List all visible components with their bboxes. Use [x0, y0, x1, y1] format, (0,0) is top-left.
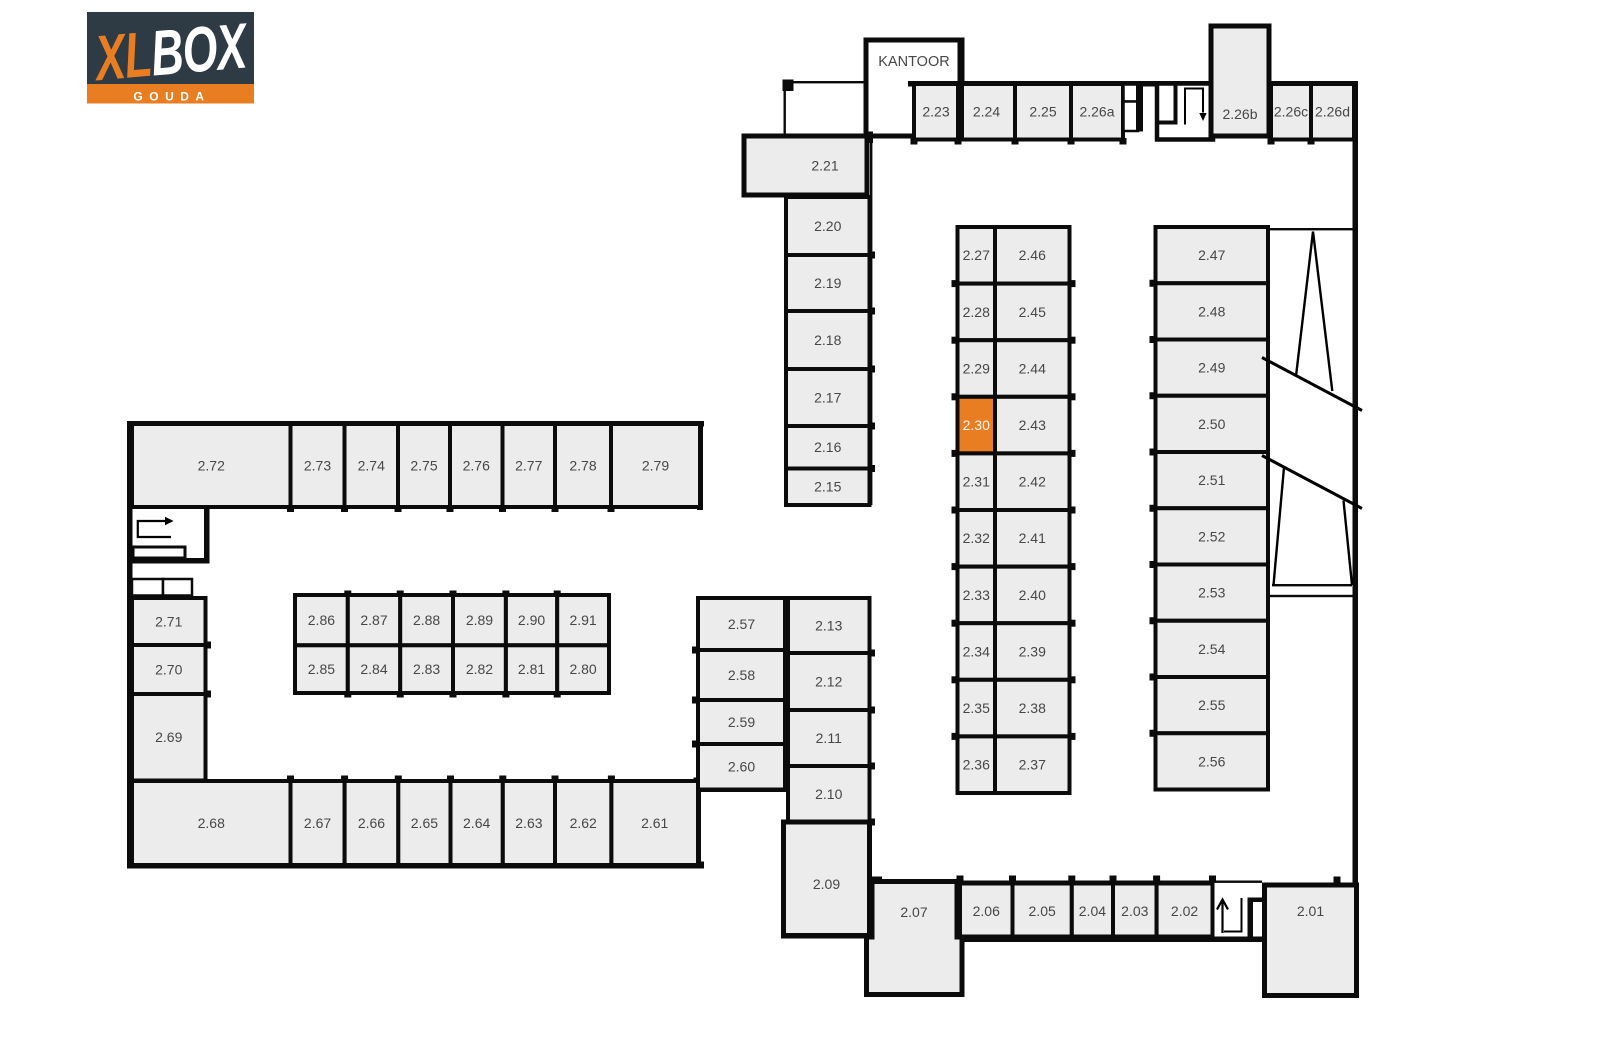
svg-text:2.21: 2.21 — [811, 157, 838, 173]
svg-text:2.77: 2.77 — [515, 457, 542, 473]
svg-text:2.67: 2.67 — [304, 815, 331, 831]
svg-text:2.69: 2.69 — [155, 729, 182, 745]
svg-text:2.34: 2.34 — [963, 643, 990, 659]
svg-text:2.18: 2.18 — [814, 332, 841, 348]
svg-text:2.44: 2.44 — [1019, 360, 1046, 376]
svg-text:2.03: 2.03 — [1121, 903, 1148, 919]
svg-text:2.78: 2.78 — [569, 457, 596, 473]
svg-text:2.52: 2.52 — [1198, 528, 1225, 544]
svg-text:2.32: 2.32 — [963, 530, 990, 546]
svg-text:2.12: 2.12 — [815, 673, 842, 689]
svg-text:2.64: 2.64 — [463, 815, 490, 831]
svg-text:2.48: 2.48 — [1198, 303, 1225, 319]
svg-text:2.89: 2.89 — [466, 612, 493, 628]
svg-text:2.65: 2.65 — [411, 815, 438, 831]
svg-text:2.72: 2.72 — [198, 457, 225, 473]
svg-text:2.60: 2.60 — [728, 759, 755, 775]
svg-text:KANTOOR: KANTOOR — [878, 54, 949, 70]
svg-text:2.19: 2.19 — [814, 275, 841, 291]
svg-text:2.86: 2.86 — [308, 612, 335, 628]
svg-text:GOUDA: GOUDA — [133, 90, 210, 104]
svg-text:2.58: 2.58 — [728, 667, 755, 683]
svg-text:2.68: 2.68 — [198, 815, 225, 831]
svg-text:2.24: 2.24 — [973, 104, 1000, 120]
svg-text:2.09: 2.09 — [813, 876, 840, 892]
svg-text:2.04: 2.04 — [1079, 903, 1106, 919]
svg-text:2.81: 2.81 — [518, 661, 545, 677]
svg-text:2.38: 2.38 — [1019, 700, 1046, 716]
svg-text:2.43: 2.43 — [1019, 417, 1046, 433]
svg-text:2.80: 2.80 — [569, 661, 596, 677]
svg-text:2.31: 2.31 — [963, 474, 990, 490]
svg-text:2.36: 2.36 — [963, 757, 990, 773]
svg-text:2.51: 2.51 — [1198, 472, 1225, 488]
svg-text:2.71: 2.71 — [155, 613, 182, 629]
svg-text:2.54: 2.54 — [1198, 641, 1225, 657]
svg-text:XLBOX: XLBOX — [90, 9, 252, 94]
svg-text:2.10: 2.10 — [815, 786, 842, 802]
svg-text:2.82: 2.82 — [466, 661, 493, 677]
svg-text:2.76: 2.76 — [463, 457, 490, 473]
svg-text:2.79: 2.79 — [642, 457, 669, 473]
svg-text:2.35: 2.35 — [963, 700, 990, 716]
svg-text:2.74: 2.74 — [358, 457, 385, 473]
svg-text:2.91: 2.91 — [569, 612, 596, 628]
svg-text:2.40: 2.40 — [1019, 587, 1046, 603]
svg-text:2.90: 2.90 — [518, 612, 545, 628]
svg-text:2.56: 2.56 — [1198, 753, 1225, 769]
svg-text:2.30: 2.30 — [963, 417, 990, 433]
svg-text:2.57: 2.57 — [728, 616, 755, 632]
svg-text:2.11: 2.11 — [816, 730, 842, 746]
svg-text:2.50: 2.50 — [1198, 416, 1225, 432]
svg-text:2.83: 2.83 — [413, 661, 440, 677]
svg-text:2.25: 2.25 — [1029, 104, 1056, 120]
svg-text:2.39: 2.39 — [1019, 643, 1046, 659]
svg-text:2.29: 2.29 — [963, 360, 990, 376]
svg-text:2.15: 2.15 — [814, 479, 841, 495]
svg-text:2.23: 2.23 — [922, 104, 949, 120]
svg-text:2.49: 2.49 — [1198, 360, 1225, 376]
svg-text:2.13: 2.13 — [815, 617, 842, 633]
svg-text:2.33: 2.33 — [963, 587, 990, 603]
svg-text:2.73: 2.73 — [304, 457, 331, 473]
svg-text:2.45: 2.45 — [1019, 304, 1046, 320]
svg-text:2.46: 2.46 — [1019, 247, 1046, 263]
svg-text:2.62: 2.62 — [570, 815, 597, 831]
svg-text:2.28: 2.28 — [963, 304, 990, 320]
svg-text:2.01: 2.01 — [1297, 903, 1324, 919]
svg-text:2.42: 2.42 — [1019, 474, 1046, 490]
svg-text:2.05: 2.05 — [1029, 903, 1056, 919]
svg-text:2.85: 2.85 — [308, 661, 335, 677]
svg-text:2.66: 2.66 — [358, 815, 385, 831]
svg-text:2.53: 2.53 — [1198, 585, 1225, 601]
svg-text:2.16: 2.16 — [814, 439, 841, 455]
svg-text:2.70: 2.70 — [155, 661, 182, 677]
svg-text:2.26c: 2.26c — [1274, 104, 1308, 120]
svg-text:2.55: 2.55 — [1198, 697, 1225, 713]
svg-text:2.37: 2.37 — [1019, 757, 1046, 773]
svg-text:2.75: 2.75 — [410, 457, 437, 473]
svg-text:2.26b: 2.26b — [1222, 106, 1257, 122]
svg-text:2.20: 2.20 — [814, 218, 841, 234]
svg-text:2.27: 2.27 — [963, 247, 990, 263]
svg-text:2.17: 2.17 — [814, 389, 841, 405]
svg-text:2.87: 2.87 — [360, 612, 387, 628]
svg-text:2.63: 2.63 — [515, 815, 542, 831]
svg-text:2.61: 2.61 — [641, 815, 668, 831]
svg-text:2.88: 2.88 — [413, 612, 440, 628]
svg-text:2.84: 2.84 — [360, 661, 387, 677]
svg-text:2.26a: 2.26a — [1079, 104, 1114, 120]
svg-text:2.02: 2.02 — [1171, 903, 1198, 919]
svg-text:2.07: 2.07 — [900, 904, 927, 920]
svg-text:2.59: 2.59 — [728, 714, 755, 730]
svg-text:2.06: 2.06 — [973, 903, 1000, 919]
svg-text:2.41: 2.41 — [1019, 530, 1046, 546]
svg-text:2.47: 2.47 — [1198, 247, 1225, 263]
svg-text:2.26d: 2.26d — [1315, 104, 1350, 120]
